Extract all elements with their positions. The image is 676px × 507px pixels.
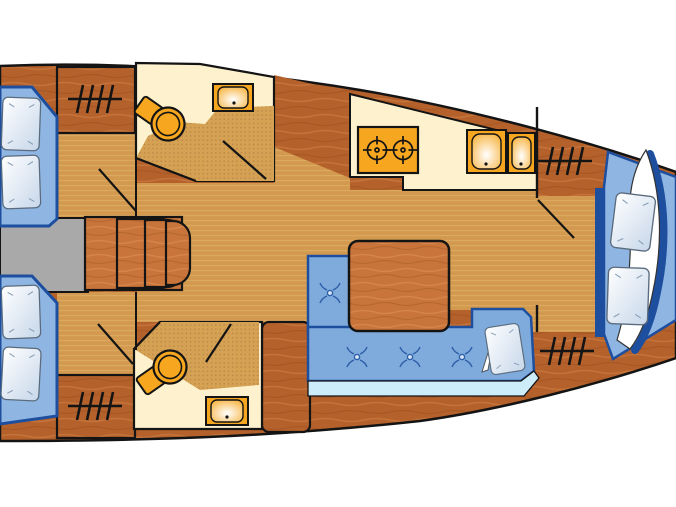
step-3 <box>166 221 190 285</box>
companionway-steps <box>85 217 190 290</box>
pillow <box>610 192 656 251</box>
sink-icon-bottom <box>206 397 248 425</box>
pillow <box>1 155 41 209</box>
pillow <box>1 97 41 151</box>
floor-fore-cabin <box>537 196 597 332</box>
head-top <box>130 63 274 181</box>
head-bottom <box>132 322 262 429</box>
sink-icon-top <box>213 84 253 111</box>
nav-cabinet <box>262 322 310 432</box>
floor-aft-cabin-bottom <box>57 292 137 375</box>
yacht-floor-plan <box>0 0 676 507</box>
pillow <box>607 267 650 325</box>
floor-saloon-right <box>448 245 523 310</box>
floor-plan-canvas <box>0 0 676 507</box>
galley-sink-icon <box>467 130 535 173</box>
pillow <box>1 347 41 401</box>
stove-icon <box>358 127 418 173</box>
saloon-table <box>349 241 449 331</box>
floor-aft-cabin-top <box>57 133 137 218</box>
pillow <box>1 285 41 339</box>
pillow <box>484 323 525 375</box>
